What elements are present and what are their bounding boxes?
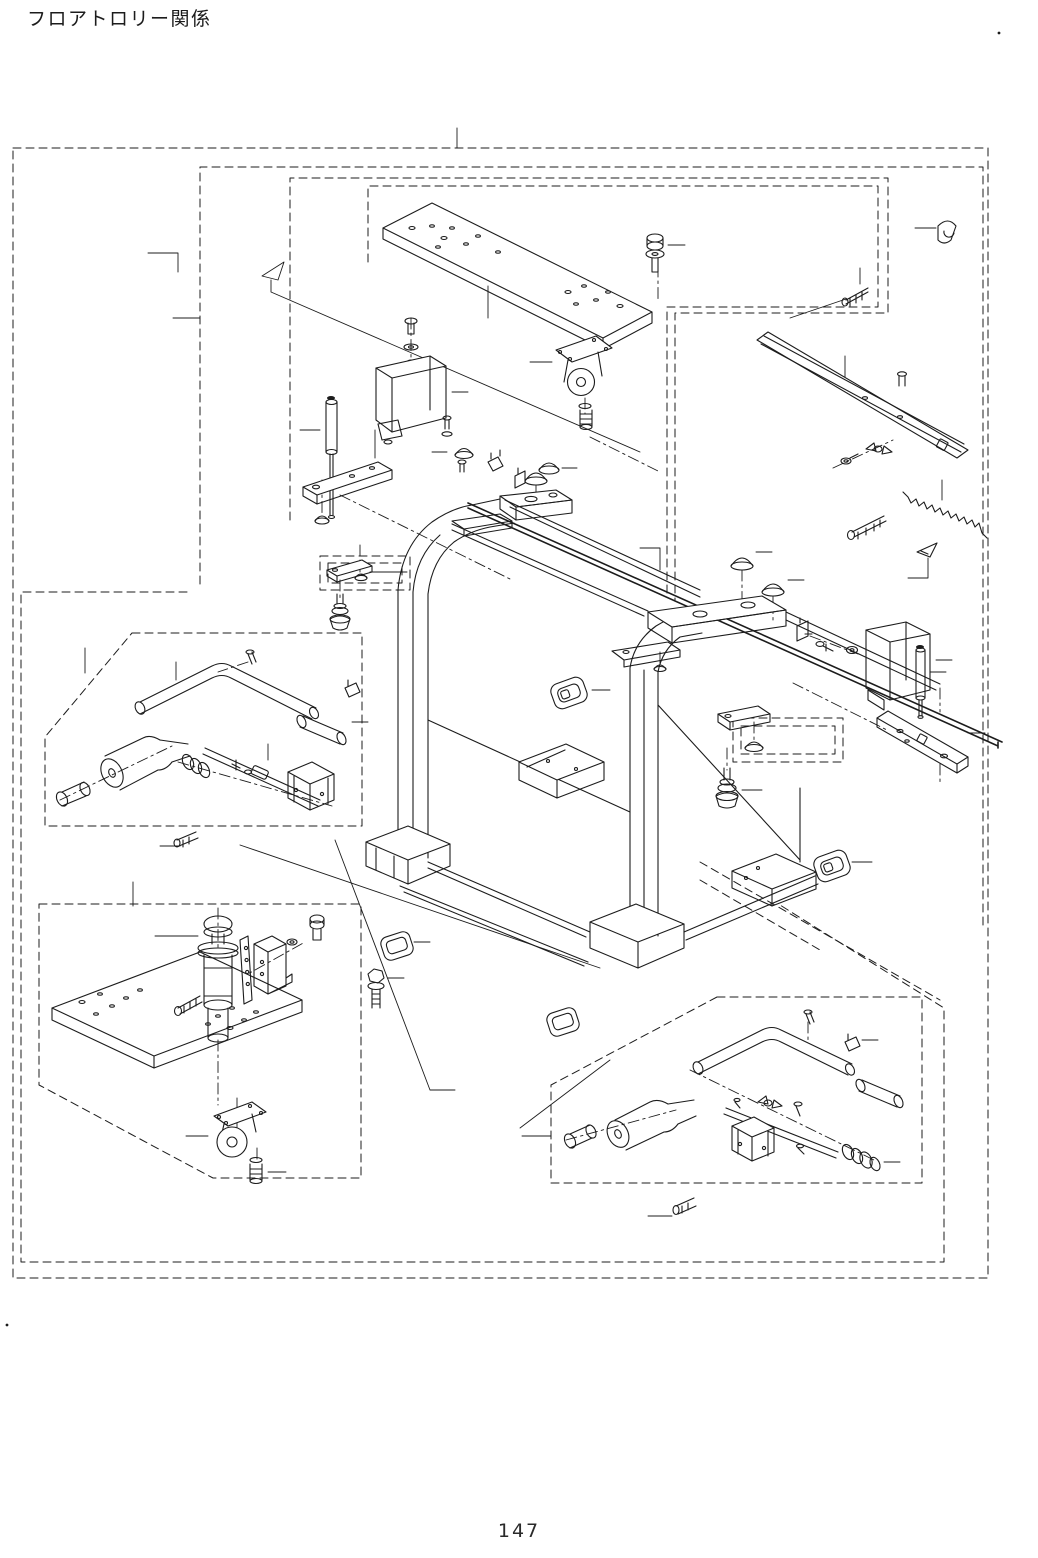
wedge-clip [917, 543, 937, 557]
handle-assembly-right [562, 1010, 905, 1215]
outer-dashed-boundary [13, 148, 988, 1278]
leveling-foot [330, 594, 350, 630]
exploded-diagram [0, 0, 1038, 1558]
pump-assembly [52, 915, 324, 1184]
cable-clamp [938, 221, 956, 243]
hex-bolt [368, 969, 384, 1008]
handle-right-box [551, 997, 922, 1183]
handle-assembly-left [54, 650, 360, 847]
rear-rail-assembly [757, 221, 987, 557]
mid-left-parts [303, 462, 392, 630]
screw [852, 516, 886, 539]
wing-nut [758, 1096, 782, 1108]
print-dot [998, 32, 1001, 35]
extension-spring [903, 492, 987, 538]
base-plate [52, 952, 302, 1056]
side-bar-plate [877, 711, 968, 764]
print-dot [6, 1324, 9, 1327]
screw [846, 288, 868, 306]
bracket-box [866, 622, 930, 642]
wing-nut [866, 443, 892, 454]
sub-assembly-dashed-boxes [13, 148, 988, 1278]
stopper-bracket-box-inner [741, 726, 835, 754]
roller [859, 1080, 900, 1107]
l-bracket [254, 936, 286, 952]
stopper-bracket-box [733, 718, 843, 762]
u-bracket [288, 762, 334, 784]
page-number: 147 [0, 1520, 1038, 1542]
lower-assembly-box [21, 167, 983, 1262]
trolley-frame [366, 473, 1002, 1038]
caster [214, 1102, 266, 1184]
catalog-page: フロアトロリー関係 [0, 0, 1038, 1558]
roller [300, 716, 343, 744]
